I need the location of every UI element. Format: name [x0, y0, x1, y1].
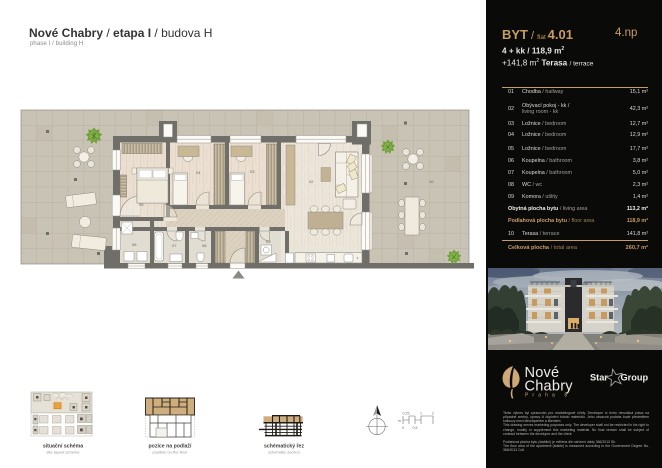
svg-text:04: 04 [196, 170, 201, 175]
svg-text:position on the floor: position on the floor [153, 450, 189, 455]
svg-text:Praha 8: Praha 8 [525, 393, 571, 399]
svg-text:1: 1 [420, 412, 422, 416]
svg-text:08: 08 [202, 243, 207, 248]
svg-text:0: 0 [402, 426, 404, 430]
svg-text:03: 03 [250, 169, 255, 174]
svg-text:0,25: 0,25 [403, 412, 410, 416]
svg-text:Star: Star [590, 373, 608, 383]
svg-text:06: 06 [132, 242, 137, 247]
svg-text:Group: Group [621, 373, 649, 383]
svg-text:2: 2 [432, 412, 434, 416]
svg-text:05: 05 [139, 202, 144, 207]
svg-text:01: 01 [232, 226, 237, 231]
svg-text:09: 09 [266, 239, 271, 244]
svg-text:schematic section: schematic section [268, 450, 300, 455]
svg-text:m: m [398, 419, 401, 423]
svg-text:10: 10 [429, 179, 434, 184]
svg-text:0,5: 0,5 [413, 426, 418, 430]
svg-text:07: 07 [172, 243, 177, 248]
svg-text:site layout scheme: site layout scheme [46, 450, 80, 455]
svg-text:02: 02 [309, 179, 314, 184]
